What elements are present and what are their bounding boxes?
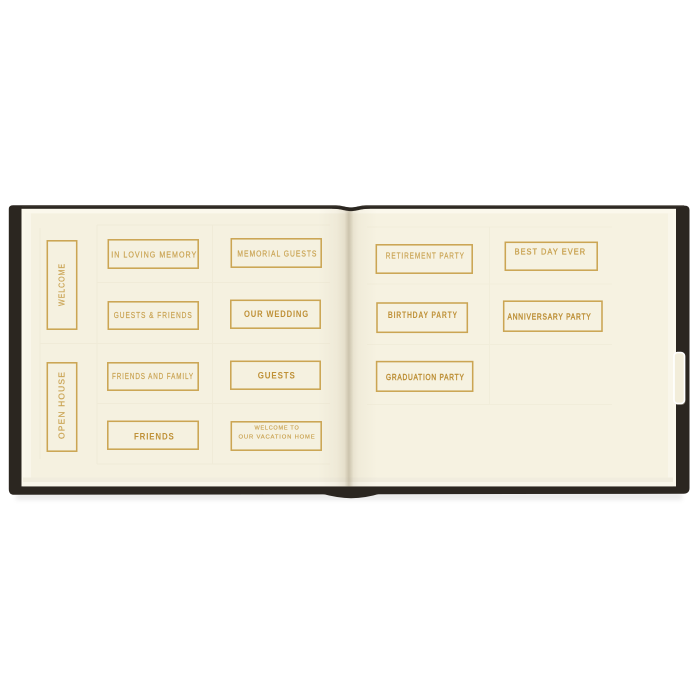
svg-text:OUR VACATION HOME: OUR VACATION HOME — [239, 434, 316, 440]
svg-text:BEST DAY EVER: BEST DAY EVER — [515, 247, 587, 257]
svg-text:ANNIVERSARY PARTY: ANNIVERSARY PARTY — [508, 312, 592, 322]
svg-text:WELCOME TO: WELCOME TO — [255, 426, 300, 432]
svg-text:OPEN HOUSE: OPEN HOUSE — [56, 371, 66, 439]
svg-text:BIRTHDAY PARTY: BIRTHDAY PARTY — [388, 310, 458, 320]
svg-text:WELCOME: WELCOME — [56, 263, 66, 306]
svg-text:RETIREMENT PARTY: RETIREMENT PARTY — [386, 250, 465, 260]
svg-text:GUESTS & FRIENDS: GUESTS & FRIENDS — [114, 310, 193, 320]
svg-text:GRADUATION PARTY: GRADUATION PARTY — [386, 372, 465, 382]
svg-text:MEMORIAL GUESTS: MEMORIAL GUESTS — [237, 249, 317, 259]
svg-text:FRIENDS AND FAMILY: FRIENDS AND FAMILY — [112, 371, 194, 381]
svg-text:OUR WEDDING: OUR WEDDING — [244, 309, 309, 319]
svg-text:IN LOVING MEMORY: IN LOVING MEMORY — [111, 249, 197, 259]
svg-text:FRIENDS: FRIENDS — [134, 431, 175, 441]
svg-text:GUESTS: GUESTS — [258, 370, 296, 380]
